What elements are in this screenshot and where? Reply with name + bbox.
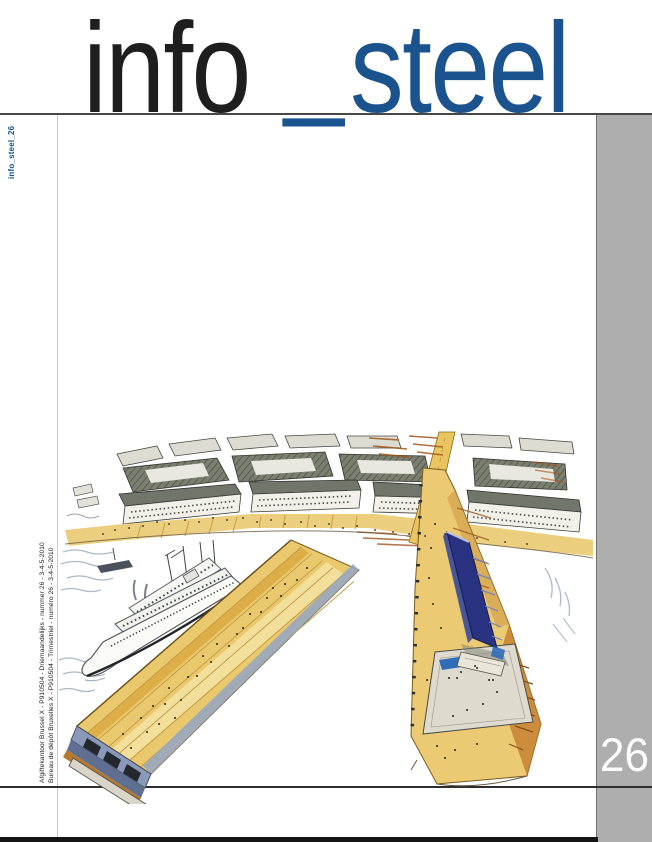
bottom-black-bar — [0, 837, 598, 842]
issue-sidebar: 26 — [596, 115, 652, 842]
magazine-cover: info _ steel 26 info_steel_26 Afgiftekan… — [0, 0, 652, 842]
masthead-underscore: _ — [284, 0, 344, 122]
mailing-line-dutch: Afgiftekantoor Brussel X - P910504 - Dri… — [39, 542, 48, 783]
cover-illustration — [57, 428, 597, 804]
issue-number: 26 — [599, 731, 651, 778]
small-boat — [97, 548, 133, 573]
header-rule — [0, 113, 652, 115]
mailing-info: Afgiftekantoor Brussel X - P910504 - Dri… — [39, 542, 56, 783]
mailing-line-french: Bureau de dépôt Bruxelles X - P910504 - … — [48, 542, 57, 783]
spine-label: info_steel_26 — [7, 126, 16, 179]
distant-buildings — [67, 484, 99, 518]
